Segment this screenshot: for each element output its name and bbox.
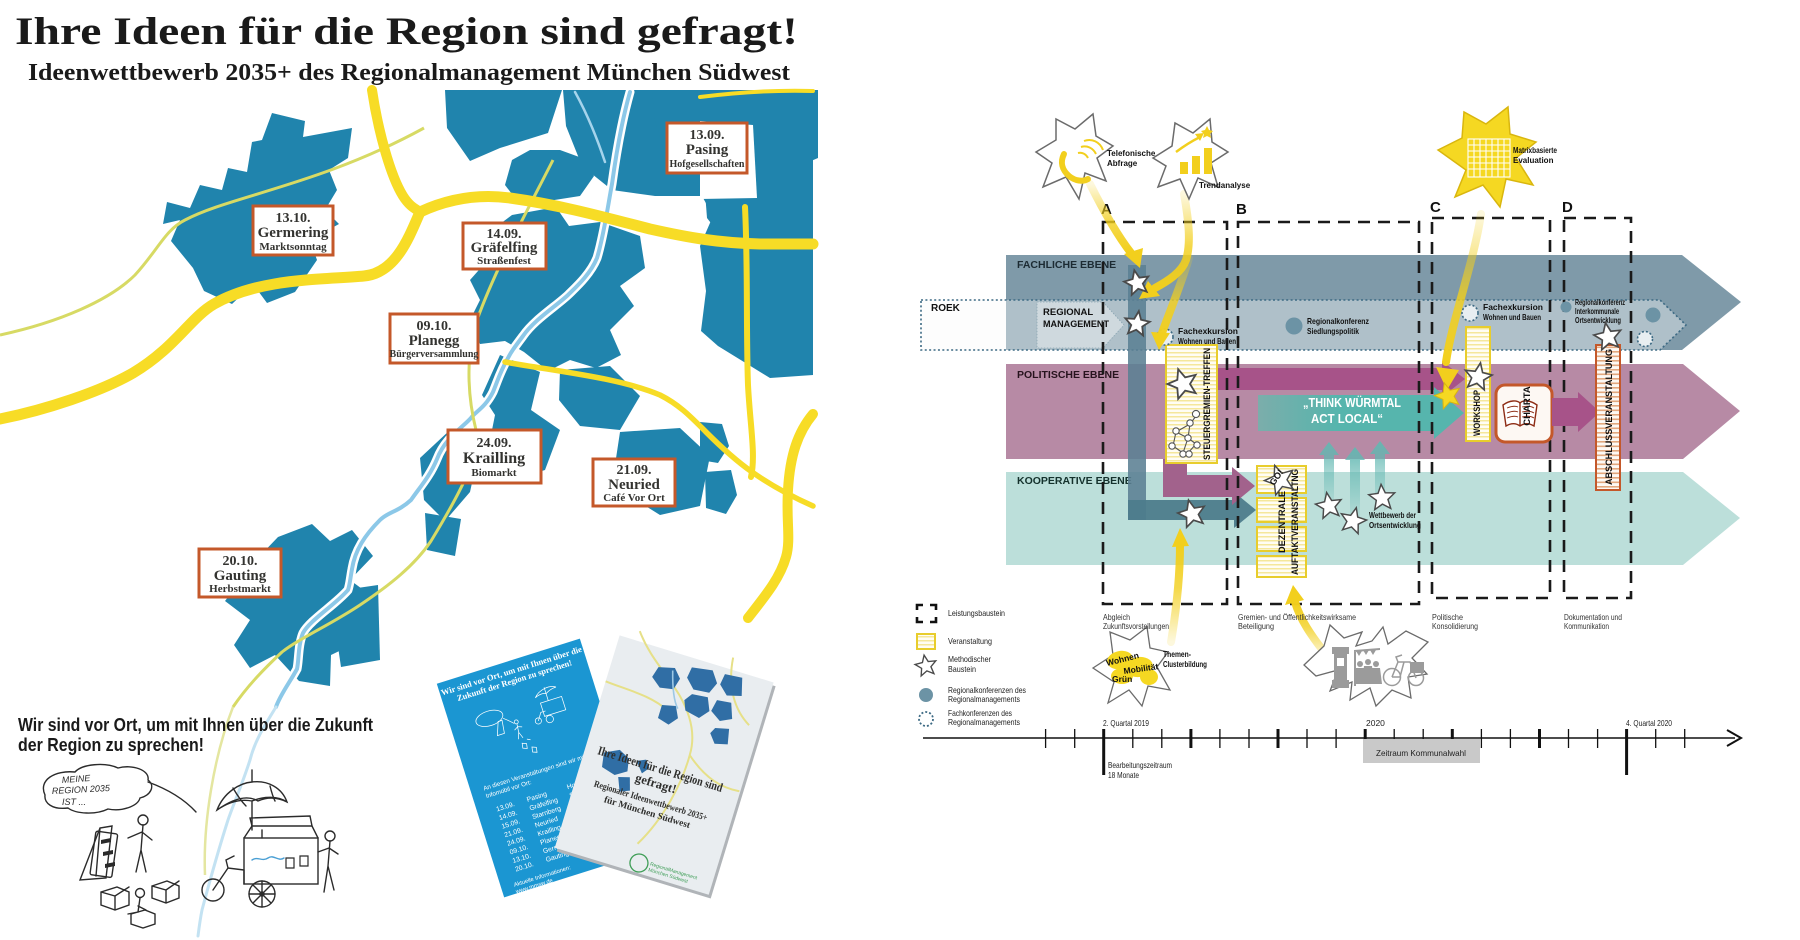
svg-text:Wettbewerb der: Wettbewerb der [1369, 511, 1416, 520]
svg-text:Regionalmanagements: Regionalmanagements [948, 717, 1020, 727]
svg-text:REGIONAL: REGIONAL [1043, 307, 1093, 318]
svg-text:der Region zu sprechen!: der Region zu sprechen! [18, 734, 204, 755]
svg-text:FACHLICHE EBENE: FACHLICHE EBENE [1017, 259, 1116, 271]
svg-text:Themen-: Themen- [1163, 650, 1191, 659]
svg-text:Krailling: Krailling [463, 450, 525, 467]
svg-text:Wir sind vor Ort, um mit Ihnen: Wir sind vor Ort, um mit Ihnen über die … [18, 714, 373, 735]
svg-text:Siedlungspolitik: Siedlungspolitik [1307, 326, 1359, 336]
svg-text:Zukunftsvorstellungen: Zukunftsvorstellungen [1103, 621, 1169, 631]
svg-text:ABSCHLUSSVERANSTALTUNG: ABSCHLUSSVERANSTALTUNG [1604, 349, 1615, 485]
svg-text:D: D [1562, 199, 1573, 216]
svg-text:Evaluation: Evaluation [1513, 156, 1554, 165]
svg-text:AUFTAKTVERANSTALTNG: AUFTAKTVERANSTALTNG [1290, 469, 1301, 575]
svg-text:Regionalkonferenz: Regionalkonferenz [1307, 316, 1369, 326]
svg-text:Herbstmarkt: Herbstmarkt [209, 583, 271, 595]
svg-text:STEUERGREMIEN-TREFFEN: STEUERGREMIEN-TREFFEN [1202, 348, 1213, 460]
svg-text:Abfrage: Abfrage [1107, 159, 1138, 168]
svg-text:Hofgesellschaften: Hofgesellschaften [670, 159, 745, 170]
svg-text:2. Quartal 2019: 2. Quartal 2019 [1103, 718, 1149, 728]
svg-text:Bearbeitungszeitraum: Bearbeitungszeitraum [1108, 760, 1172, 770]
svg-text:IST ...: IST ... [62, 797, 86, 807]
svg-text:Regionalmanagements: Regionalmanagements [948, 694, 1020, 704]
svg-text:CHARTA: CHARTA [1522, 386, 1533, 426]
svg-text:DEZENTRALE: DEZENTRALE [1277, 491, 1288, 553]
svg-text:Planegg: Planegg [409, 333, 460, 349]
svg-text:ACT LOCAL“: ACT LOCAL“ [1311, 412, 1383, 426]
svg-text:C: C [1430, 199, 1441, 216]
svg-text:Interkommunale: Interkommunale [1575, 307, 1619, 316]
svg-text:Café Vor Ort: Café Vor Ort [603, 492, 665, 504]
svg-text:20.10.: 20.10. [223, 554, 258, 569]
svg-text:Clusterbildung: Clusterbildung [1163, 660, 1207, 669]
svg-text:21.09.: 21.09. [617, 463, 652, 478]
svg-text:Zeitraum Kommunalwahl: Zeitraum Kommunalwahl [1376, 748, 1466, 758]
svg-text:KOOPERATIVE EBENE: KOOPERATIVE EBENE [1017, 475, 1132, 487]
svg-text:B: B [1236, 201, 1247, 218]
svg-text:Trendanalyse: Trendanalyse [1199, 181, 1251, 190]
svg-text:Wohnen und Bauen: Wohnen und Bauen [1483, 312, 1541, 322]
svg-text:Beteiligung: Beteiligung [1238, 621, 1274, 631]
svg-text:18 Monate: 18 Monate [1108, 770, 1139, 780]
svg-text:ROEK: ROEK [931, 303, 961, 314]
svg-text:4. Quartal 2020: 4. Quartal 2020 [1626, 718, 1672, 728]
svg-text:Leistungsbaustein: Leistungsbaustein [948, 608, 1005, 618]
svg-text:Straßenfest: Straßenfest [477, 255, 531, 267]
svg-text:09.10.: 09.10. [417, 319, 452, 334]
svg-text:Bürgerversammlung: Bürgerversammlung [390, 349, 479, 360]
svg-text:WORKSHOP: WORKSHOP [1472, 390, 1482, 436]
svg-text:13.09.: 13.09. [690, 128, 725, 143]
svg-text:Germering: Germering [258, 225, 329, 241]
svg-text:Marktsonntag: Marktsonntag [259, 241, 327, 253]
svg-text:Kommunikation: Kommunikation [1564, 621, 1609, 631]
svg-text:Ideenwettbewerb 2035+ des Regi: Ideenwettbewerb 2035+ des Regionalmanage… [28, 60, 790, 86]
svg-text:Wohnen und Bauen: Wohnen und Bauen [1178, 336, 1236, 346]
svg-text:Ortsentwicklung: Ortsentwicklung [1369, 521, 1421, 530]
svg-text:24.09.: 24.09. [477, 436, 512, 451]
svg-text:Gräfelfing: Gräfelfing [471, 240, 538, 256]
svg-text:Telefonische: Telefonische [1107, 149, 1156, 158]
svg-text:Ihre Ideen für die Region sind: Ihre Ideen für die Region sind gefragt! [15, 10, 798, 53]
svg-text:Regionalkonferenz: Regionalkonferenz [1575, 298, 1625, 307]
svg-text:Biomarkt: Biomarkt [471, 467, 517, 479]
svg-text:Pasing: Pasing [686, 142, 729, 158]
svg-text:Fachexkursion: Fachexkursion [1178, 326, 1238, 336]
svg-text:„THINK WÜRMTAL: „THINK WÜRMTAL [1303, 395, 1401, 410]
svg-text:2020: 2020 [1366, 718, 1385, 728]
svg-text:Matrixbasierte: Matrixbasierte [1513, 146, 1557, 155]
svg-text:Veranstaltung: Veranstaltung [948, 636, 992, 646]
svg-text:Baustein: Baustein [948, 664, 976, 674]
svg-text:MANAGEMENT: MANAGEMENT [1043, 319, 1109, 330]
svg-text:Methodischer: Methodischer [948, 654, 991, 664]
svg-text:Grün: Grün [1112, 674, 1132, 684]
svg-text:Gauting: Gauting [214, 568, 267, 584]
svg-text:Ortsentwicklung: Ortsentwicklung [1575, 316, 1621, 325]
svg-text:13.10.: 13.10. [276, 211, 311, 226]
svg-text:Fachexkursion: Fachexkursion [1483, 302, 1543, 312]
svg-text:Neuried: Neuried [608, 477, 660, 493]
svg-text:Konsolidierung: Konsolidierung [1432, 621, 1478, 631]
